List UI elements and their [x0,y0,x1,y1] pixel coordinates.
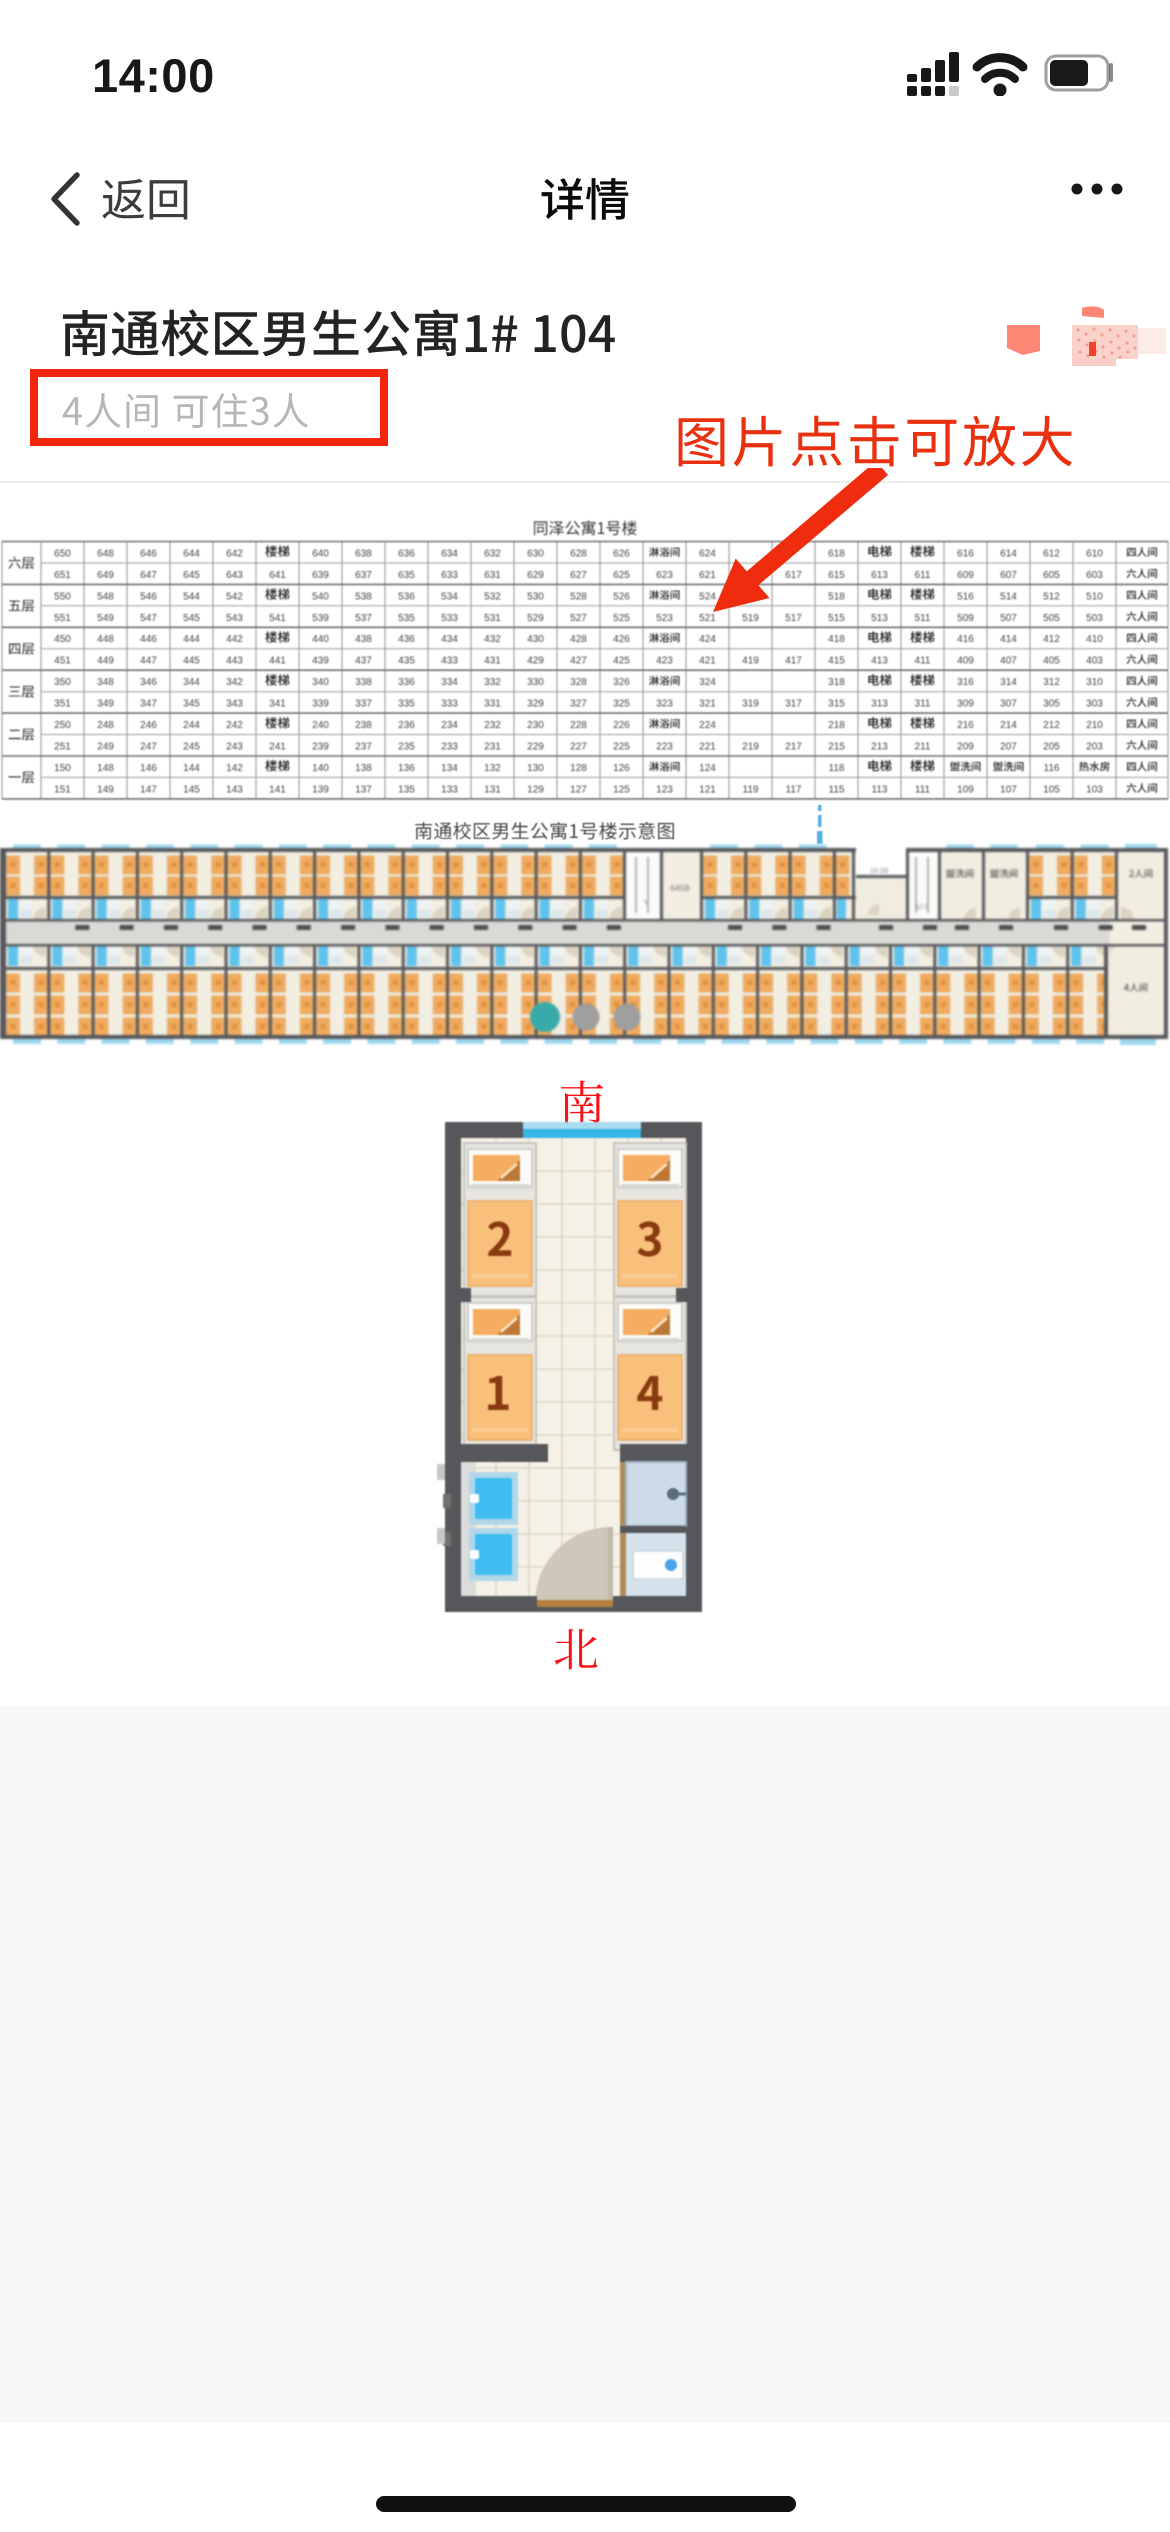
svg-text:219: 219 [742,742,759,753]
svg-text:603: 603 [1086,570,1103,581]
svg-text:218: 218 [828,720,845,731]
svg-text:330: 330 [527,677,544,688]
svg-text:314: 314 [1000,677,1017,688]
svg-text:444: 444 [183,634,200,645]
svg-text:507: 507 [1000,613,1017,624]
svg-text:645B: 645B [670,883,690,893]
svg-text:236: 236 [398,720,415,731]
svg-text:241: 241 [269,742,286,753]
svg-text:233: 233 [441,742,458,753]
svg-text:417: 417 [785,656,802,667]
svg-text:631: 631 [484,570,501,581]
svg-text:351: 351 [54,699,71,710]
svg-text:311: 311 [915,699,931,710]
svg-text:551: 551 [54,613,71,624]
svg-text:129: 129 [527,784,544,795]
svg-text:426: 426 [613,634,630,645]
svg-text:329: 329 [527,699,544,710]
svg-text:124: 124 [699,763,716,774]
svg-text:103: 103 [1086,784,1103,795]
svg-text:649: 649 [97,570,114,581]
svg-text:538: 538 [355,591,372,602]
svg-text:315: 315 [828,699,845,710]
svg-text:503: 503 [1086,613,1103,624]
svg-text:633: 633 [441,570,458,581]
svg-text:249: 249 [97,742,114,753]
svg-text:211: 211 [915,742,931,753]
svg-text:105: 105 [1043,784,1060,795]
svg-text:638: 638 [355,548,372,559]
svg-text:232: 232 [484,720,501,731]
svg-text:338: 338 [355,677,372,688]
svg-text:407: 407 [1000,656,1017,667]
svg-text:245: 245 [183,742,200,753]
svg-text:323: 323 [656,699,673,710]
svg-text:203: 203 [1086,742,1103,753]
svg-text:546: 546 [140,591,157,602]
svg-text:428: 428 [570,634,587,645]
svg-text:116: 116 [1044,763,1060,774]
svg-text:429: 429 [527,656,544,667]
svg-text:121: 121 [699,784,716,795]
svg-text:423: 423 [656,656,673,667]
svg-text:634: 634 [441,548,458,559]
svg-text:435: 435 [398,656,415,667]
svg-text:213: 213 [871,742,888,753]
svg-text:413: 413 [871,656,888,667]
svg-text:344: 344 [183,677,200,688]
svg-text:526: 526 [613,591,630,602]
svg-text:416: 416 [957,634,974,645]
svg-text:650: 650 [54,548,71,559]
svg-text:447: 447 [140,656,157,667]
svg-text:531: 531 [484,613,501,624]
svg-text:332: 332 [484,677,501,688]
svg-text:645: 645 [183,570,200,581]
svg-text:212: 212 [1043,720,1060,731]
svg-text:540: 540 [312,591,329,602]
svg-text:530: 530 [527,591,544,602]
svg-text:227: 227 [570,742,587,753]
svg-text:544: 544 [183,591,200,602]
svg-text:128: 128 [570,763,587,774]
svg-text:325: 325 [613,699,630,710]
svg-text:533: 533 [441,613,458,624]
svg-text:644: 644 [183,548,200,559]
svg-text:244: 244 [183,720,200,731]
svg-text:139: 139 [312,784,329,795]
svg-text:534: 534 [441,591,458,602]
svg-text:415: 415 [828,656,845,667]
svg-text:113: 113 [872,784,888,795]
svg-text:543: 543 [226,613,243,624]
svg-text:516: 516 [957,591,974,602]
svg-text:440: 440 [312,634,329,645]
svg-text:327: 327 [570,699,587,710]
svg-text:609: 609 [957,570,974,581]
svg-text:16.08: 16.08 [870,866,889,875]
svg-text:216: 216 [957,720,974,731]
svg-text:324: 324 [699,677,716,688]
svg-text:334: 334 [441,677,458,688]
svg-text:536: 536 [398,591,415,602]
svg-text:123: 123 [656,784,673,795]
svg-text:240: 240 [312,720,329,731]
svg-text:341: 341 [269,699,286,710]
svg-text:537: 537 [355,613,372,624]
svg-text:132: 132 [484,763,501,774]
svg-text:309: 309 [957,699,974,710]
svg-text:433: 433 [441,656,458,667]
svg-text:535: 535 [398,613,415,624]
svg-text:251: 251 [54,742,71,753]
svg-text:210: 210 [1086,720,1103,731]
svg-text:605: 605 [1043,570,1060,581]
svg-text:528: 528 [570,591,587,602]
svg-text:310: 310 [1086,677,1103,688]
svg-text:137: 137 [355,784,372,795]
svg-text:514: 514 [1000,591,1017,602]
svg-text:126: 126 [613,763,630,774]
svg-text:224: 224 [699,720,716,731]
svg-text:127: 127 [570,784,587,795]
svg-text:639: 639 [312,570,329,581]
svg-text:215: 215 [828,742,845,753]
svg-text:437: 437 [355,656,372,667]
svg-text:630: 630 [527,548,544,559]
svg-text:647: 647 [140,570,157,581]
svg-text:225: 225 [613,742,630,753]
svg-text:529: 529 [527,613,544,624]
svg-text:614: 614 [1000,548,1017,559]
svg-text:229: 229 [527,742,544,753]
svg-text:434: 434 [441,634,458,645]
svg-text:446: 446 [140,634,157,645]
svg-text:230: 230 [527,720,544,731]
svg-text:443: 443 [226,656,243,667]
svg-text:523: 523 [656,613,673,624]
svg-text:146: 146 [140,763,157,774]
svg-text:115: 115 [829,784,845,795]
svg-text:525: 525 [613,613,630,624]
svg-text:111: 111 [915,784,931,795]
svg-text:509: 509 [957,613,974,624]
svg-text:239: 239 [312,742,329,753]
svg-text:632: 632 [484,548,501,559]
svg-text:144: 144 [183,763,200,774]
svg-text:405: 405 [1043,656,1060,667]
svg-text:138: 138 [355,763,372,774]
svg-text:438: 438 [355,634,372,645]
svg-text:135: 135 [398,784,415,795]
svg-text:326: 326 [613,677,630,688]
svg-text:119: 119 [743,784,759,795]
svg-text:623: 623 [656,570,673,581]
svg-text:449: 449 [97,656,114,667]
svg-text:412: 412 [1043,634,1060,645]
svg-text:231: 231 [484,742,501,753]
svg-text:349: 349 [97,699,114,710]
svg-text:235: 235 [398,742,415,753]
svg-text:136: 136 [398,763,415,774]
svg-text:648: 648 [97,548,114,559]
svg-text:140: 140 [312,763,329,774]
svg-text:226: 226 [613,720,630,731]
svg-text:445: 445 [183,656,200,667]
svg-text:512: 512 [1043,591,1060,602]
svg-text:339: 339 [312,699,329,710]
svg-text:640: 640 [312,548,329,559]
svg-text:142: 142 [226,763,243,774]
svg-text:312: 312 [1043,677,1060,688]
svg-text:151: 151 [54,784,71,795]
svg-text:317: 317 [785,699,802,710]
svg-text:316: 316 [957,677,974,688]
svg-text:425: 425 [613,656,630,667]
svg-text:125: 125 [613,784,630,795]
svg-text:342: 342 [226,677,243,688]
svg-text:627: 627 [570,570,587,581]
svg-text:643: 643 [226,570,243,581]
svg-text:313: 313 [871,699,888,710]
svg-text:450: 450 [54,634,71,645]
svg-text:243: 243 [226,742,243,753]
svg-text:545: 545 [183,613,200,624]
svg-text:228: 228 [570,720,587,731]
svg-text:532: 532 [484,591,501,602]
svg-text:250: 250 [54,720,71,731]
svg-text:131: 131 [484,784,501,795]
svg-text:641: 641 [269,570,286,581]
svg-text:347: 347 [140,699,157,710]
svg-text:248: 248 [97,720,114,731]
svg-text:209: 209 [957,742,974,753]
svg-text:607: 607 [1000,570,1017,581]
svg-text:148: 148 [97,763,114,774]
svg-text:410: 410 [1086,634,1103,645]
svg-text:141: 141 [269,784,286,795]
svg-text:441: 441 [269,656,286,667]
svg-text:637: 637 [355,570,372,581]
svg-text:12.0: 12.0 [915,904,929,911]
svg-text:612: 612 [1043,548,1060,559]
svg-text:439: 439 [312,656,329,667]
svg-text:234: 234 [441,720,458,731]
svg-text:107: 107 [1000,784,1017,795]
svg-text:411: 411 [915,656,931,667]
svg-text:505: 505 [1043,613,1060,624]
svg-text:321: 321 [699,699,716,710]
svg-text:133: 133 [441,784,458,795]
svg-text:143: 143 [226,784,243,795]
svg-text:539: 539 [312,613,329,624]
svg-text:448: 448 [97,634,114,645]
svg-text:432: 432 [484,634,501,645]
svg-text:237: 237 [355,742,372,753]
svg-text:335: 335 [398,699,415,710]
svg-text:118: 118 [829,763,845,774]
svg-text:214: 214 [1000,720,1017,731]
svg-text:130: 130 [527,763,544,774]
svg-text:242: 242 [226,720,243,731]
svg-text:345: 345 [183,699,200,710]
svg-text:117: 117 [786,784,802,795]
svg-text:150: 150 [54,763,71,774]
svg-text:238: 238 [355,720,372,731]
svg-text:646: 646 [140,548,157,559]
svg-text:205: 205 [1043,742,1060,753]
svg-text:149: 149 [97,784,114,795]
svg-text:333: 333 [441,699,458,710]
svg-text:642: 642 [226,548,243,559]
svg-text:348: 348 [97,677,114,688]
svg-text:318: 318 [828,677,845,688]
svg-text:409: 409 [957,656,974,667]
svg-text:145: 145 [183,784,200,795]
svg-text:109: 109 [957,784,974,795]
svg-text:427: 427 [570,656,587,667]
svg-text:331: 331 [484,699,501,710]
svg-text:221: 221 [699,742,716,753]
svg-text:403: 403 [1086,656,1103,667]
svg-text:134: 134 [441,763,458,774]
svg-text:340: 340 [312,677,329,688]
svg-text:610: 610 [1086,548,1103,559]
svg-text:217: 217 [785,742,802,753]
svg-text:636: 636 [398,548,415,559]
svg-text:549: 549 [97,613,114,624]
svg-text:414: 414 [1000,634,1017,645]
svg-text:421: 421 [699,656,716,667]
svg-text:542: 542 [226,591,243,602]
svg-text:346: 346 [140,677,157,688]
svg-text:419: 419 [742,656,759,667]
svg-text:303: 303 [1086,699,1103,710]
svg-text:246: 246 [140,720,157,731]
svg-text:616: 616 [957,548,974,559]
svg-text:319: 319 [742,699,759,710]
svg-text:207: 207 [1000,742,1017,753]
svg-text:625: 625 [613,570,630,581]
svg-text:337: 337 [355,699,372,710]
svg-text:328: 328 [570,677,587,688]
svg-text:336: 336 [398,677,415,688]
svg-text:510: 510 [1086,591,1103,602]
svg-text:350: 350 [54,677,71,688]
svg-text:527: 527 [570,613,587,624]
svg-text:451: 451 [54,656,71,667]
svg-text:629: 629 [527,570,544,581]
svg-text:541: 541 [269,613,286,624]
svg-text:635: 635 [398,570,415,581]
svg-text:247: 247 [140,742,157,753]
svg-text:223: 223 [656,742,673,753]
svg-text:305: 305 [1043,699,1060,710]
svg-text:147: 147 [140,784,157,795]
svg-text:550: 550 [54,591,71,602]
svg-text:628: 628 [570,548,587,559]
svg-text:547: 547 [140,613,157,624]
svg-text:430: 430 [527,634,544,645]
svg-text:651: 651 [54,570,71,581]
svg-text:431: 431 [484,656,501,667]
svg-text:307: 307 [1000,699,1017,710]
svg-text:548: 548 [97,591,114,602]
svg-text:436: 436 [398,634,415,645]
svg-text:626: 626 [613,548,630,559]
svg-text:442: 442 [226,634,243,645]
svg-text:343: 343 [226,699,243,710]
